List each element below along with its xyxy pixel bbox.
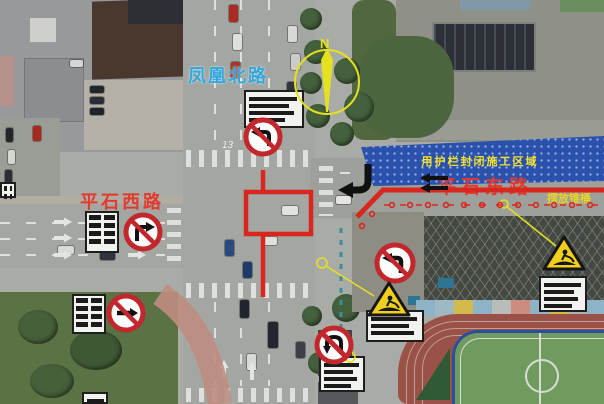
truck: [33, 126, 41, 141]
road-label-pingshi-east: 平石东路: [437, 172, 533, 199]
tree: [300, 8, 322, 30]
car: [225, 240, 234, 256]
crosswalk-west: [167, 208, 181, 266]
road-label-fenghuang-north: 凤凰北路: [188, 62, 268, 88]
green-compass-area: [358, 36, 454, 138]
car: [90, 97, 104, 104]
tree: [70, 330, 122, 370]
detour-notice-sign: [82, 392, 108, 404]
crosswalk-far-south: [186, 388, 314, 402]
blue-tarp: [438, 278, 454, 288]
lane-line: [0, 238, 165, 240]
car: [247, 354, 256, 370]
tree: [306, 104, 330, 128]
car: [288, 26, 297, 42]
car: [233, 34, 242, 50]
car: [58, 246, 74, 254]
detour-notice-sign: [0, 182, 16, 198]
detour-notice-sign: [72, 294, 106, 334]
rooftop-structure: [460, 0, 530, 10]
van: [336, 196, 351, 204]
tree: [334, 58, 360, 84]
detour-notice-sign: [366, 310, 424, 342]
closure-banner-label: 用护栏封闭施工区域: [422, 153, 539, 169]
car: [90, 108, 104, 115]
lane-line: [0, 222, 165, 224]
car: [6, 128, 13, 142]
car: [240, 300, 249, 318]
car: [243, 262, 252, 278]
car: [282, 206, 298, 215]
building-roof-dark: [128, 0, 185, 24]
building-gray: [24, 58, 84, 122]
car: [229, 5, 238, 22]
crosswalk-south: [186, 283, 314, 298]
detour-notice-sign: [539, 276, 587, 312]
car: [100, 252, 115, 260]
car: [291, 54, 300, 70]
tree: [344, 92, 374, 122]
pink-pavement: [0, 56, 14, 106]
crosswalk-east: [319, 166, 333, 216]
car: [70, 60, 83, 67]
pavement-marking-13: 13: [222, 140, 233, 151]
compass-north-label: N: [320, 36, 329, 51]
tree: [302, 306, 322, 326]
lane-line: [214, 302, 216, 386]
building-white: [30, 18, 56, 42]
tree: [18, 310, 58, 344]
bus: [268, 322, 278, 348]
crosswalk-north: [186, 150, 314, 167]
rooftop-structure: [560, 0, 604, 12]
detour-notice-sign: [85, 211, 119, 253]
car: [262, 237, 277, 245]
detour-notice-sign: [319, 356, 365, 392]
road-label-pingshi-west: 平石西路: [80, 188, 164, 214]
car: [296, 342, 305, 358]
tree: [330, 122, 354, 146]
car: [90, 86, 104, 93]
cones-note-label: 摆放锥桶: [547, 190, 591, 206]
lane-line: [0, 254, 165, 256]
aerial-traffic-plan: 用护栏封闭施工区域: [0, 0, 604, 404]
car: [8, 150, 15, 164]
tree: [30, 364, 74, 398]
soccer-field: [452, 330, 604, 404]
field-center-circle: [525, 359, 559, 393]
detour-notice-sign: [244, 90, 304, 128]
